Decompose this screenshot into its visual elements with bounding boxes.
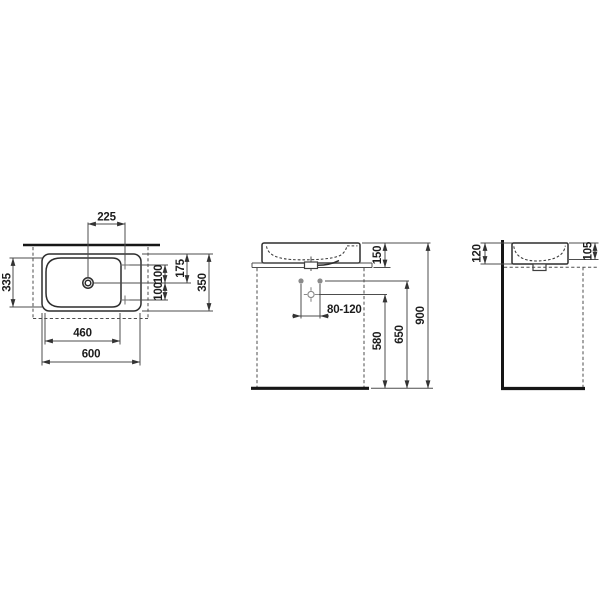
outlet-crosshair-circle — [308, 291, 314, 297]
dim-label-460: 460 — [73, 328, 92, 340]
dim-label-80-120: 80-120 — [327, 304, 362, 316]
dim-label-100-upper: 100 — [153, 265, 165, 284]
dim-label-900: 900 — [415, 306, 427, 325]
outlet-crosshair — [304, 287, 318, 301]
supply-dot-left — [298, 278, 303, 283]
drain-fitting — [305, 262, 318, 269]
dim-label-600: 600 — [82, 349, 101, 361]
technical-drawing-canvas: 225 335 100 100 175 350 460 600 — [0, 0, 600, 600]
dim-label-105: 105 — [583, 241, 595, 260]
front-elevation-view: 80-120 150 580 650 900 — [251, 243, 433, 388]
plan-view: 225 335 100 100 175 350 460 600 — [2, 212, 214, 366]
dim-label-150: 150 — [372, 246, 384, 265]
outlet-crosshair-ticks — [304, 287, 318, 301]
washbasin-dimension-drawing: 225 335 100 100 175 350 460 600 — [0, 0, 600, 600]
dim-label-335: 335 — [2, 272, 14, 291]
side-elevation-view: 120 105 — [472, 240, 599, 390]
dim-label-350: 350 — [197, 273, 209, 292]
dim-label-580: 580 — [372, 332, 384, 351]
dim-label-100-lower: 100 — [153, 282, 165, 301]
dim-label-120: 120 — [472, 244, 484, 263]
dim-label-650: 650 — [394, 325, 406, 344]
supply-dot-right — [317, 278, 322, 283]
dim-label-175: 175 — [175, 258, 187, 277]
dim-label-225: 225 — [97, 212, 116, 224]
